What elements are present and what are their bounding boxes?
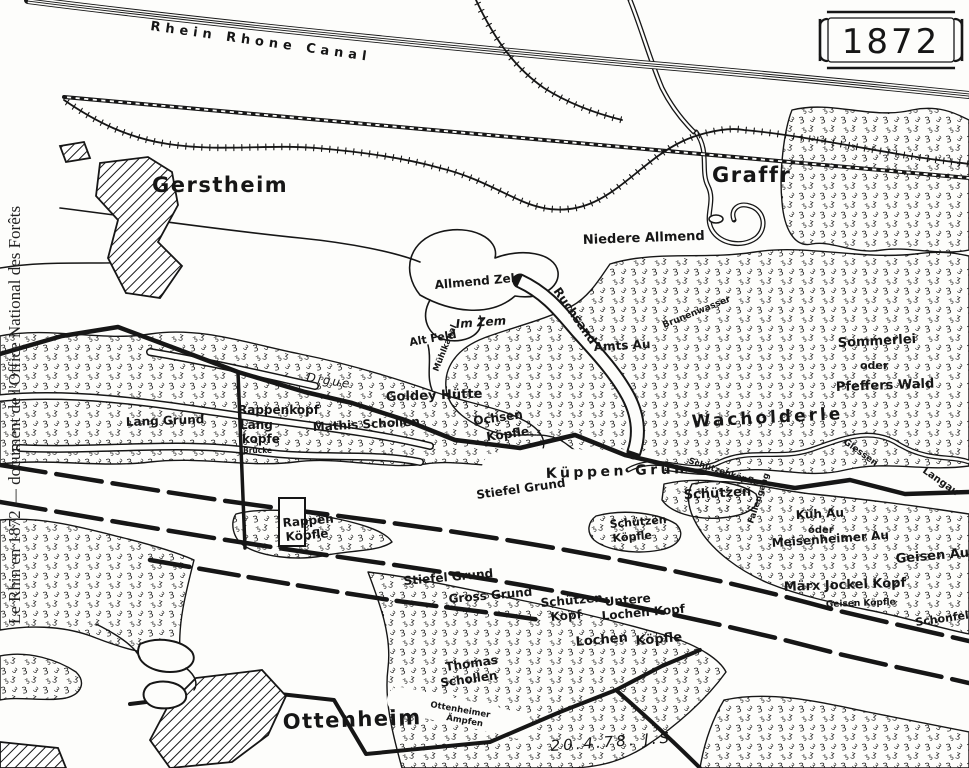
label-year: 1872 [842, 22, 941, 62]
label-oder-1: oder [860, 359, 889, 372]
label-amts-au: Amts Au [593, 337, 650, 354]
label-rappenkopf-1: Rappenkopf [238, 403, 320, 417]
label-ottenheim: Ottenheim [282, 705, 422, 734]
label-graffr: Graffr [712, 163, 791, 187]
label-gerstheim: Gerstheim [152, 173, 288, 197]
label-rappenkopf-3: kopfe [242, 432, 280, 446]
label-kuh-au: Küh Au [795, 505, 844, 522]
label-schutzen-kopf-2: Kopf [550, 607, 583, 624]
label-caption: Le Rhin en 1872 — document de l'Office N… [5, 206, 24, 624]
gerstheim-area-2 [60, 142, 90, 162]
historic-rhine-map: 3 ʒ 3 ʒ [0, 0, 969, 768]
forest-upper-right [781, 107, 969, 252]
map-page: 3 ʒ 3 ʒ [0, 0, 969, 768]
label-rappenkopf-2: Lang [240, 418, 273, 432]
label-brucke: Brücke [243, 446, 272, 455]
label-lang-grund: Lang Grund [126, 412, 205, 429]
